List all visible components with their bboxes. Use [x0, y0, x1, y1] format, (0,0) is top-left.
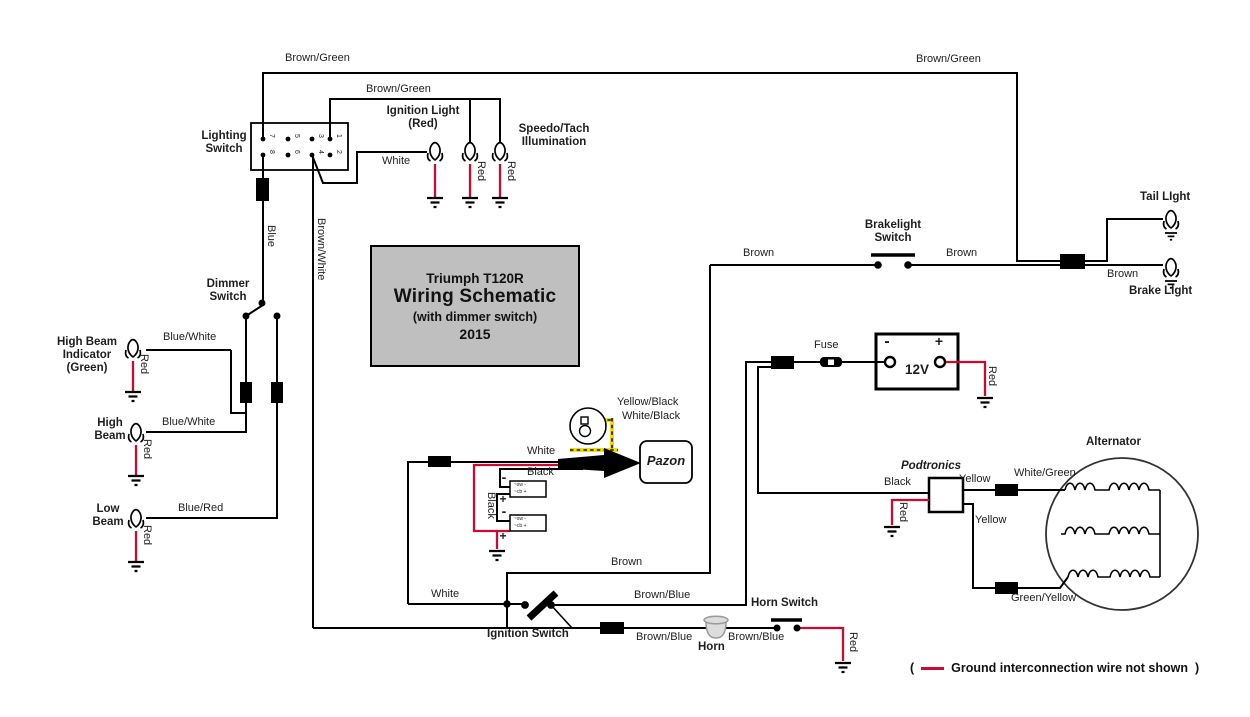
- alternator-symbol: [1046, 458, 1198, 610]
- high-beam-bulb: [129, 424, 144, 442]
- connector-battery-line: [771, 356, 794, 369]
- wiring-schematic: Triumph T120R Wiring Schematic (with dim…: [0, 0, 1250, 717]
- connector-dimmer-right: [271, 382, 283, 403]
- legend-red-wire-sample: [921, 667, 944, 670]
- coil-2: [510, 515, 546, 531]
- trigger-pickup: [581, 417, 588, 424]
- low-beam-bulb: [129, 510, 144, 528]
- tail-light-bulb: [1164, 211, 1179, 229]
- speedo-bulb-2: [493, 143, 508, 161]
- wire-brown-white: [313, 155, 777, 628]
- wire-ignition-switch-out: [551, 605, 572, 628]
- alternator-coil-row-3: [1068, 570, 1160, 577]
- alternator-circle: [1046, 458, 1198, 610]
- ignition-coils: [510, 481, 546, 531]
- wire-brown-green-main: [263, 73, 1062, 261]
- horn-icon: [704, 616, 728, 638]
- ignition-light-bulb: [428, 143, 443, 161]
- ground-symbols: [125, 198, 1177, 672]
- connector-tail-brake: [1060, 254, 1085, 269]
- legend-open-paren: (: [910, 661, 914, 675]
- connector-horn-line: [600, 622, 624, 634]
- title-line-3: (with dimmer switch): [413, 310, 537, 324]
- battery-pos-terminal: [935, 357, 945, 367]
- wire-yellow-lower: [963, 504, 1068, 588]
- speedo-bulb-1: [463, 143, 478, 161]
- red-coil-ground: [474, 465, 583, 549]
- fuse-symbol: [820, 357, 842, 367]
- alternator-coil-row-1: [1065, 483, 1160, 490]
- brake-light-bulb: [1164, 259, 1179, 277]
- connector-dimmer-left: [240, 382, 252, 403]
- connector-alt-upper: [995, 484, 1018, 496]
- schematic-artwork: [0, 0, 1250, 717]
- connector-white: [428, 456, 451, 467]
- harness-arrow: [558, 448, 641, 478]
- wire-brown-green-panel: [330, 99, 500, 142]
- bullet-connectors: [240, 178, 1085, 634]
- legend-note: Ground interconnection wire not shown: [951, 661, 1188, 675]
- coil-1: [510, 481, 546, 497]
- legend-close-paren: ): [1195, 661, 1199, 675]
- wires-red: [133, 164, 985, 661]
- red-podtronics-ground: [892, 500, 929, 525]
- trigger-assembly: [558, 408, 641, 478]
- lighting-switch-block: [251, 123, 348, 170]
- pazon-box: [640, 441, 692, 483]
- high-beam-indicator-bulb: [126, 340, 141, 358]
- title-line-2: Wiring Schematic: [394, 286, 556, 308]
- red-horn-ground: [798, 628, 843, 661]
- junction-dot: [504, 601, 510, 607]
- connector-blue: [256, 178, 269, 201]
- podtronics-box: [929, 478, 963, 512]
- title-line-1: Triumph T120R: [426, 271, 524, 286]
- title-box: Triumph T120R Wiring Schematic (with dim…: [370, 245, 580, 367]
- trigger-cam-circle: [580, 426, 591, 437]
- title-line-4: 2015: [459, 326, 490, 342]
- alternator-coil-row-2: [1061, 527, 1160, 534]
- connector-alt-lower: [995, 582, 1018, 594]
- battery-neg-terminal: [885, 357, 895, 367]
- legend: ( Ground interconnection wire not shown …: [910, 661, 1199, 675]
- wire-tail-light: [1085, 219, 1163, 261]
- wire-dimmer-circuit: [146, 155, 277, 518]
